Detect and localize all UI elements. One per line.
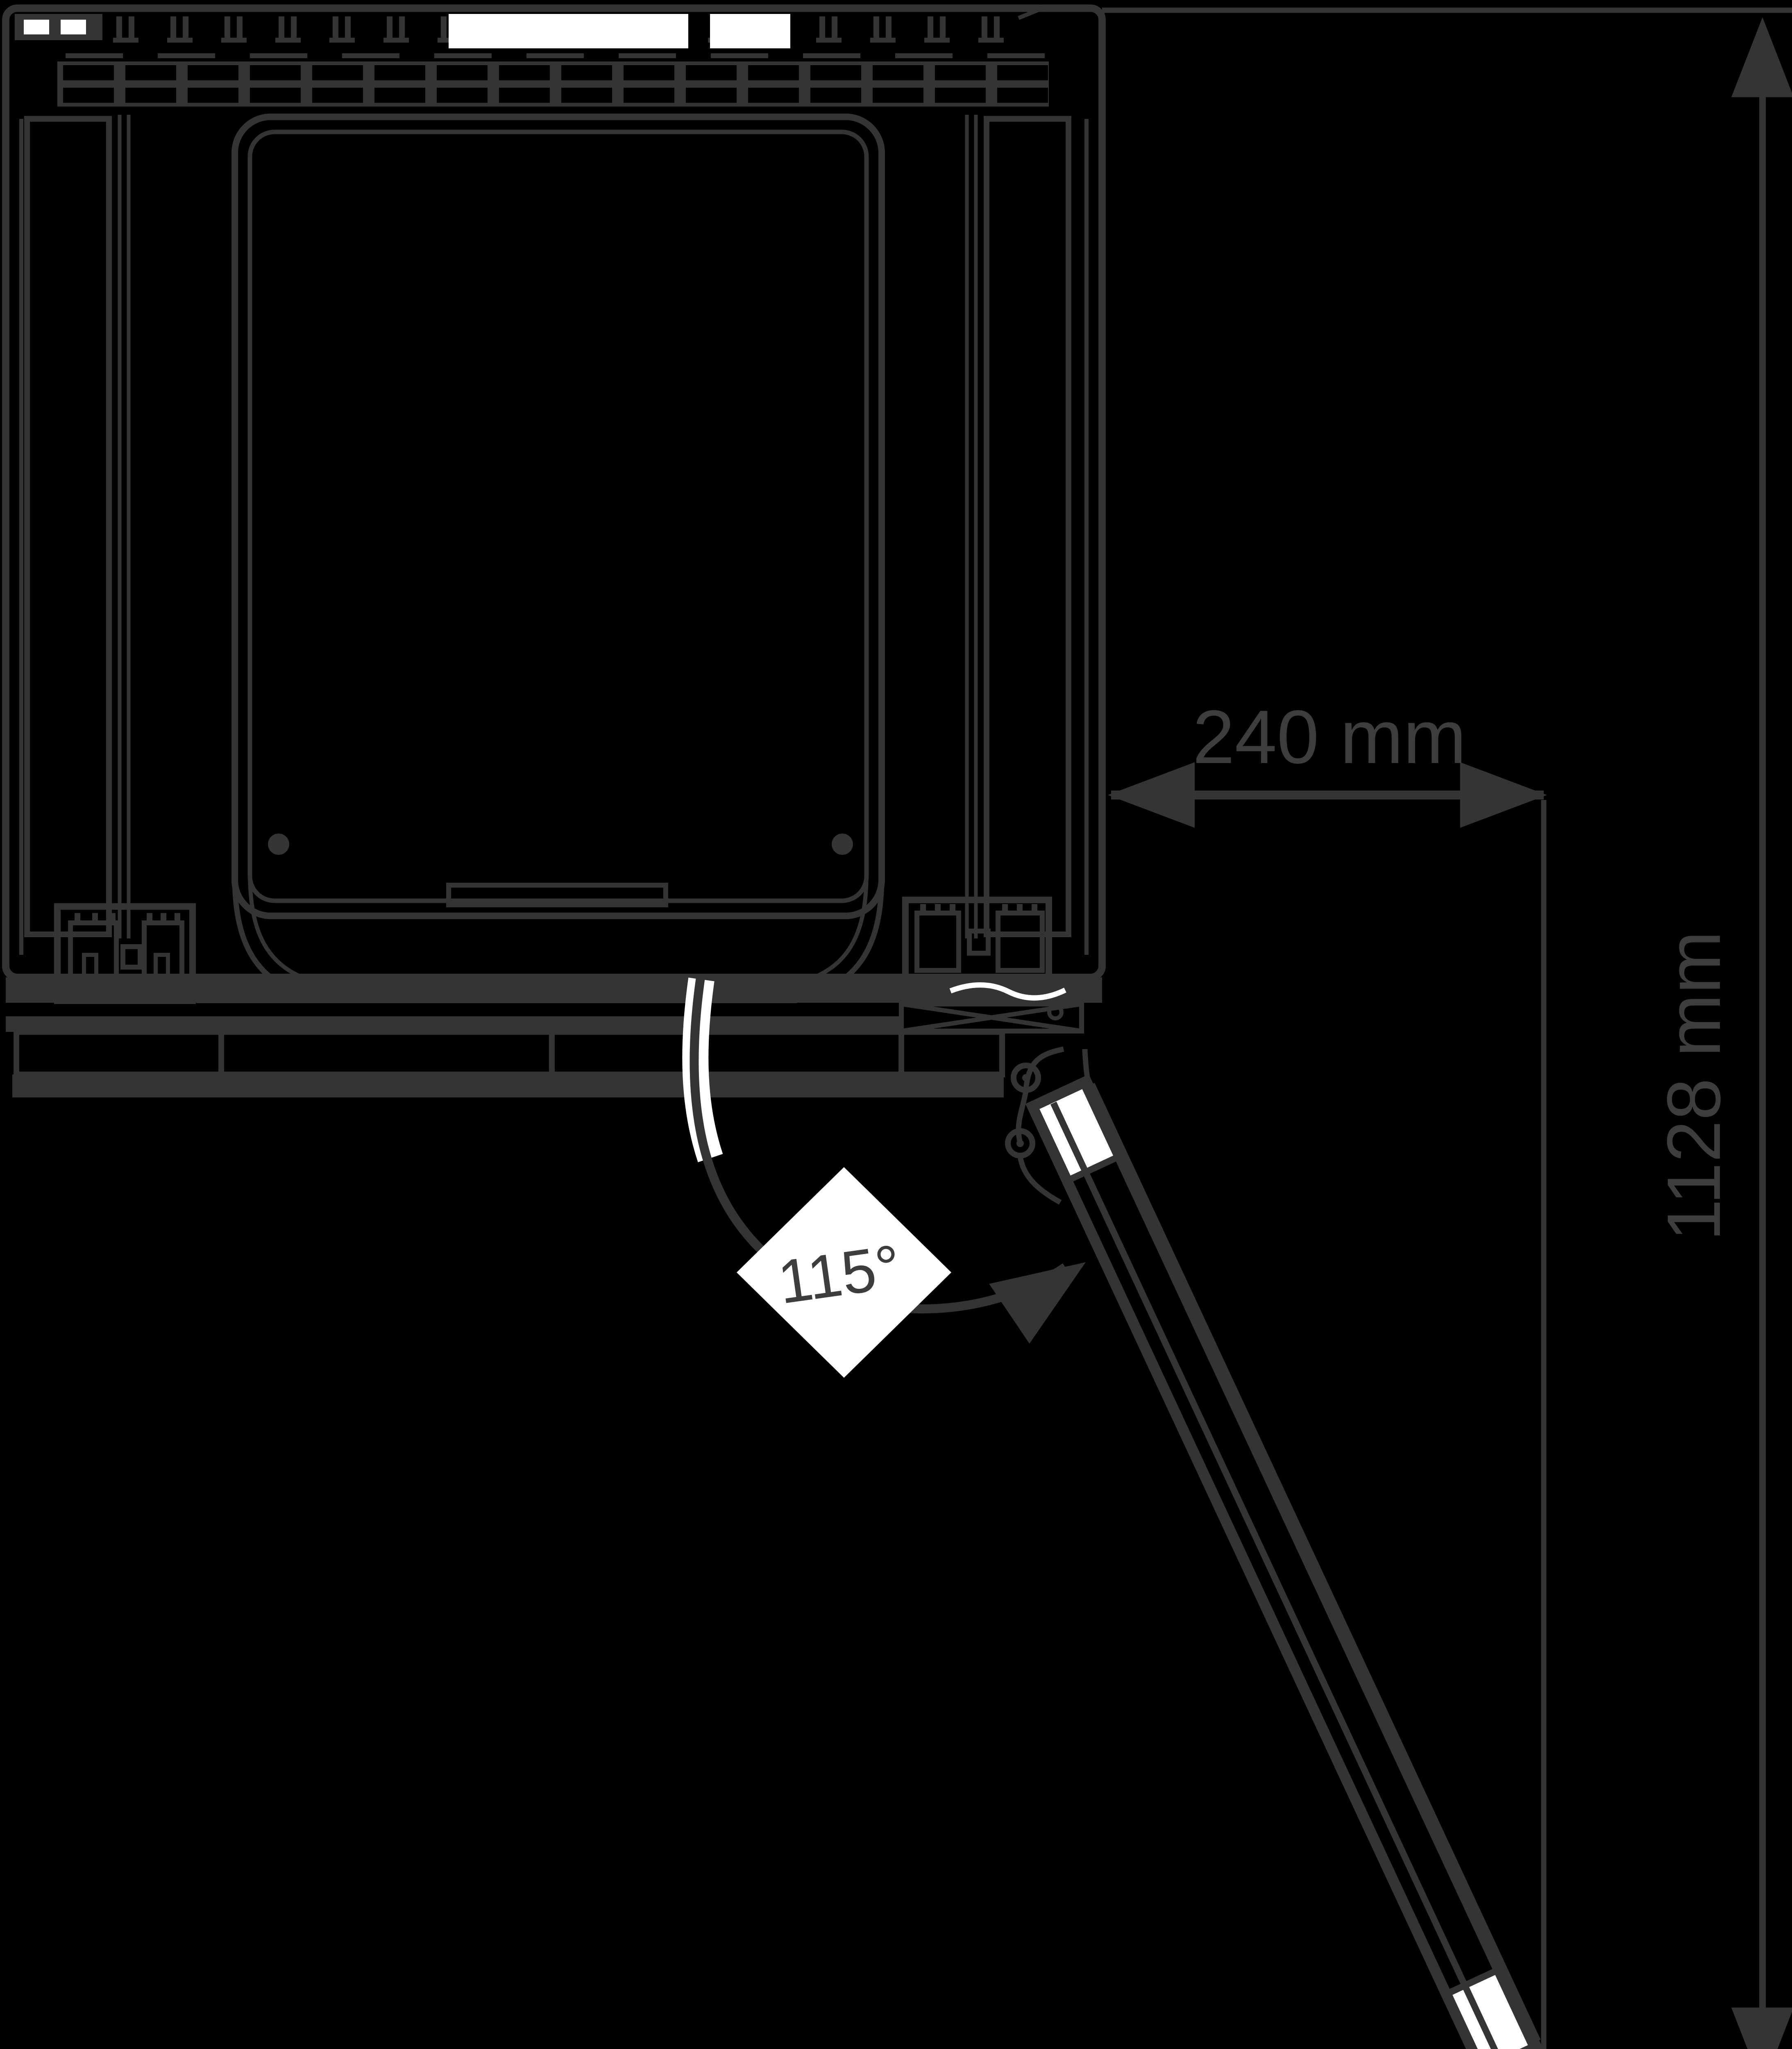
front-top-rail [6,977,1102,1003]
installation-diagram: 115° 240 mm 1128 mm [0,0,1792,2049]
hinge-pivot-dot [1022,1074,1030,1081]
terminal-prong [950,904,955,914]
terminal-prong [110,913,116,923]
clip-box-slot [61,20,86,34]
vent-grille-slots [57,61,1049,107]
depth-dimension-label: 1128 mm [1652,931,1736,1241]
cavity-stud-left [268,834,289,855]
terminal-prong [175,913,180,923]
front-bottom-rail [12,1074,1004,1097]
terminal-prong [75,913,80,923]
terminal-prong [1002,904,1008,914]
terminal-prong [935,904,941,914]
terminal-prong [147,913,152,923]
clip-box-slot [24,20,49,34]
rail-label-plate [449,14,688,48]
diagram-canvas: 115° 240 mm 1128 mm [0,0,1792,2049]
terminal-prong [92,913,98,923]
width-dimension-label: 240 mm [1193,695,1466,779]
terminal-prong [1032,904,1037,914]
rail-plate-small [710,14,790,48]
cavity-stud-right [832,834,853,855]
terminal-prong [920,904,926,914]
hinge-pivot-dot [1016,1140,1024,1147]
terminal-prong [1017,904,1023,914]
terminal-prong [161,913,166,923]
